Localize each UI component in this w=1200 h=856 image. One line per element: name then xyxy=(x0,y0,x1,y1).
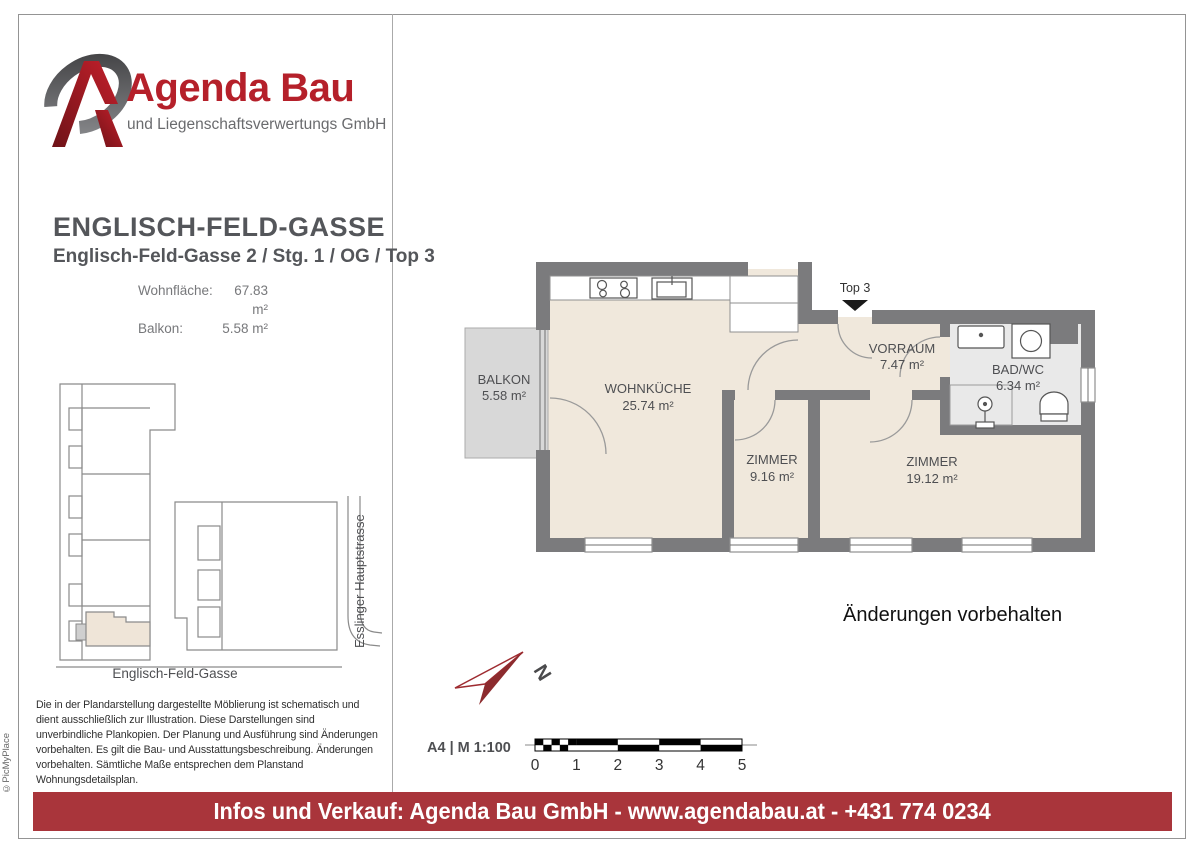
room-area: 19.12 m² xyxy=(906,471,958,486)
room-area: 25.74 m² xyxy=(622,398,674,413)
contact-banner-text: Infos und Verkauf: Agenda Bau GmbH - www… xyxy=(214,798,991,825)
scale-tick: 5 xyxy=(738,757,747,774)
street-label-right: Esslinger Hauptstrasse xyxy=(352,488,368,648)
brand-name: Agenda Bau xyxy=(126,66,354,111)
room-area: 5.58 m² xyxy=(482,388,527,403)
toilet-icon xyxy=(1040,392,1068,421)
washing-machine-icon xyxy=(1012,324,1050,358)
brand-subtitle: und Liegenschaftsverwertungs GmbH xyxy=(127,116,386,134)
contact-banner: Infos und Verkauf: Agenda Bau GmbH - www… xyxy=(33,792,1172,831)
page-title: ENGLISCH-FELD-GASSE xyxy=(53,212,385,243)
unit-marker-arrow-icon xyxy=(842,300,868,311)
copyright-credit: ©PicMyPlace xyxy=(1,733,12,794)
area-value: 5.58 m² xyxy=(220,319,268,338)
north-arrow-icon: N xyxy=(445,642,560,722)
stove-icon xyxy=(590,278,637,298)
room-label: BALKON xyxy=(478,372,531,387)
area-summary: Wohnfläche: 67.83 m² Balkon: 5.58 m² xyxy=(138,281,268,338)
changes-note: Änderungen vorbehalten xyxy=(843,604,1062,627)
agenda-bau-logo xyxy=(40,48,140,152)
north-label: N xyxy=(529,661,555,685)
highlighted-unit xyxy=(76,612,150,646)
room-area: 9.16 m² xyxy=(750,469,795,484)
area-row: Wohnfläche: 67.83 m² xyxy=(138,281,268,319)
room-label: WOHNKÜCHE xyxy=(605,381,692,396)
scale-bar: 0 1 2 3 4 5 xyxy=(525,735,760,777)
area-row: Balkon: 5.58 m² xyxy=(138,319,268,338)
scale-format-label: A4 | M 1:100 xyxy=(427,740,511,756)
site-plan xyxy=(52,378,382,678)
scale-tick: 4 xyxy=(696,757,705,774)
room-area: 7.47 m² xyxy=(880,357,925,372)
room-label: BAD/WC xyxy=(992,362,1044,377)
area-label: Wohnfläche: xyxy=(138,281,220,319)
unit-marker-label: Top 3 xyxy=(840,281,871,295)
area-value: 67.83 m² xyxy=(220,281,268,319)
unit-marker: Top 3 xyxy=(840,281,871,311)
sink-icon xyxy=(652,276,692,299)
scale-tick: 2 xyxy=(613,757,622,774)
scale-tick: 0 xyxy=(531,757,540,774)
room-label: ZIMMER xyxy=(906,454,957,469)
washbasin-icon xyxy=(958,326,1004,348)
scale-tick: 1 xyxy=(572,757,581,774)
room-label: VORRAUM xyxy=(869,341,935,356)
area-label: Balkon: xyxy=(138,319,220,338)
plan-sheet: Agenda Bau und Liegenschaftsverwertungs … xyxy=(0,0,1200,856)
room-label: ZIMMER xyxy=(746,452,797,467)
page-subtitle: Englisch-Feld-Gasse 2 / Stg. 1 / OG / To… xyxy=(53,246,435,268)
disclaimer-text: Die in der Plandarstellung dargestellte … xyxy=(36,698,382,788)
street-label-bottom: Englisch-Feld-Gasse xyxy=(65,666,285,681)
panel-divider xyxy=(392,14,393,792)
room-area: 6.34 m² xyxy=(996,378,1041,393)
floor-plan: Top 3 BALKON 5.58 m² WOHNKÜCHE 25.74 m² … xyxy=(440,252,1120,582)
scale-tick: 3 xyxy=(655,757,664,774)
